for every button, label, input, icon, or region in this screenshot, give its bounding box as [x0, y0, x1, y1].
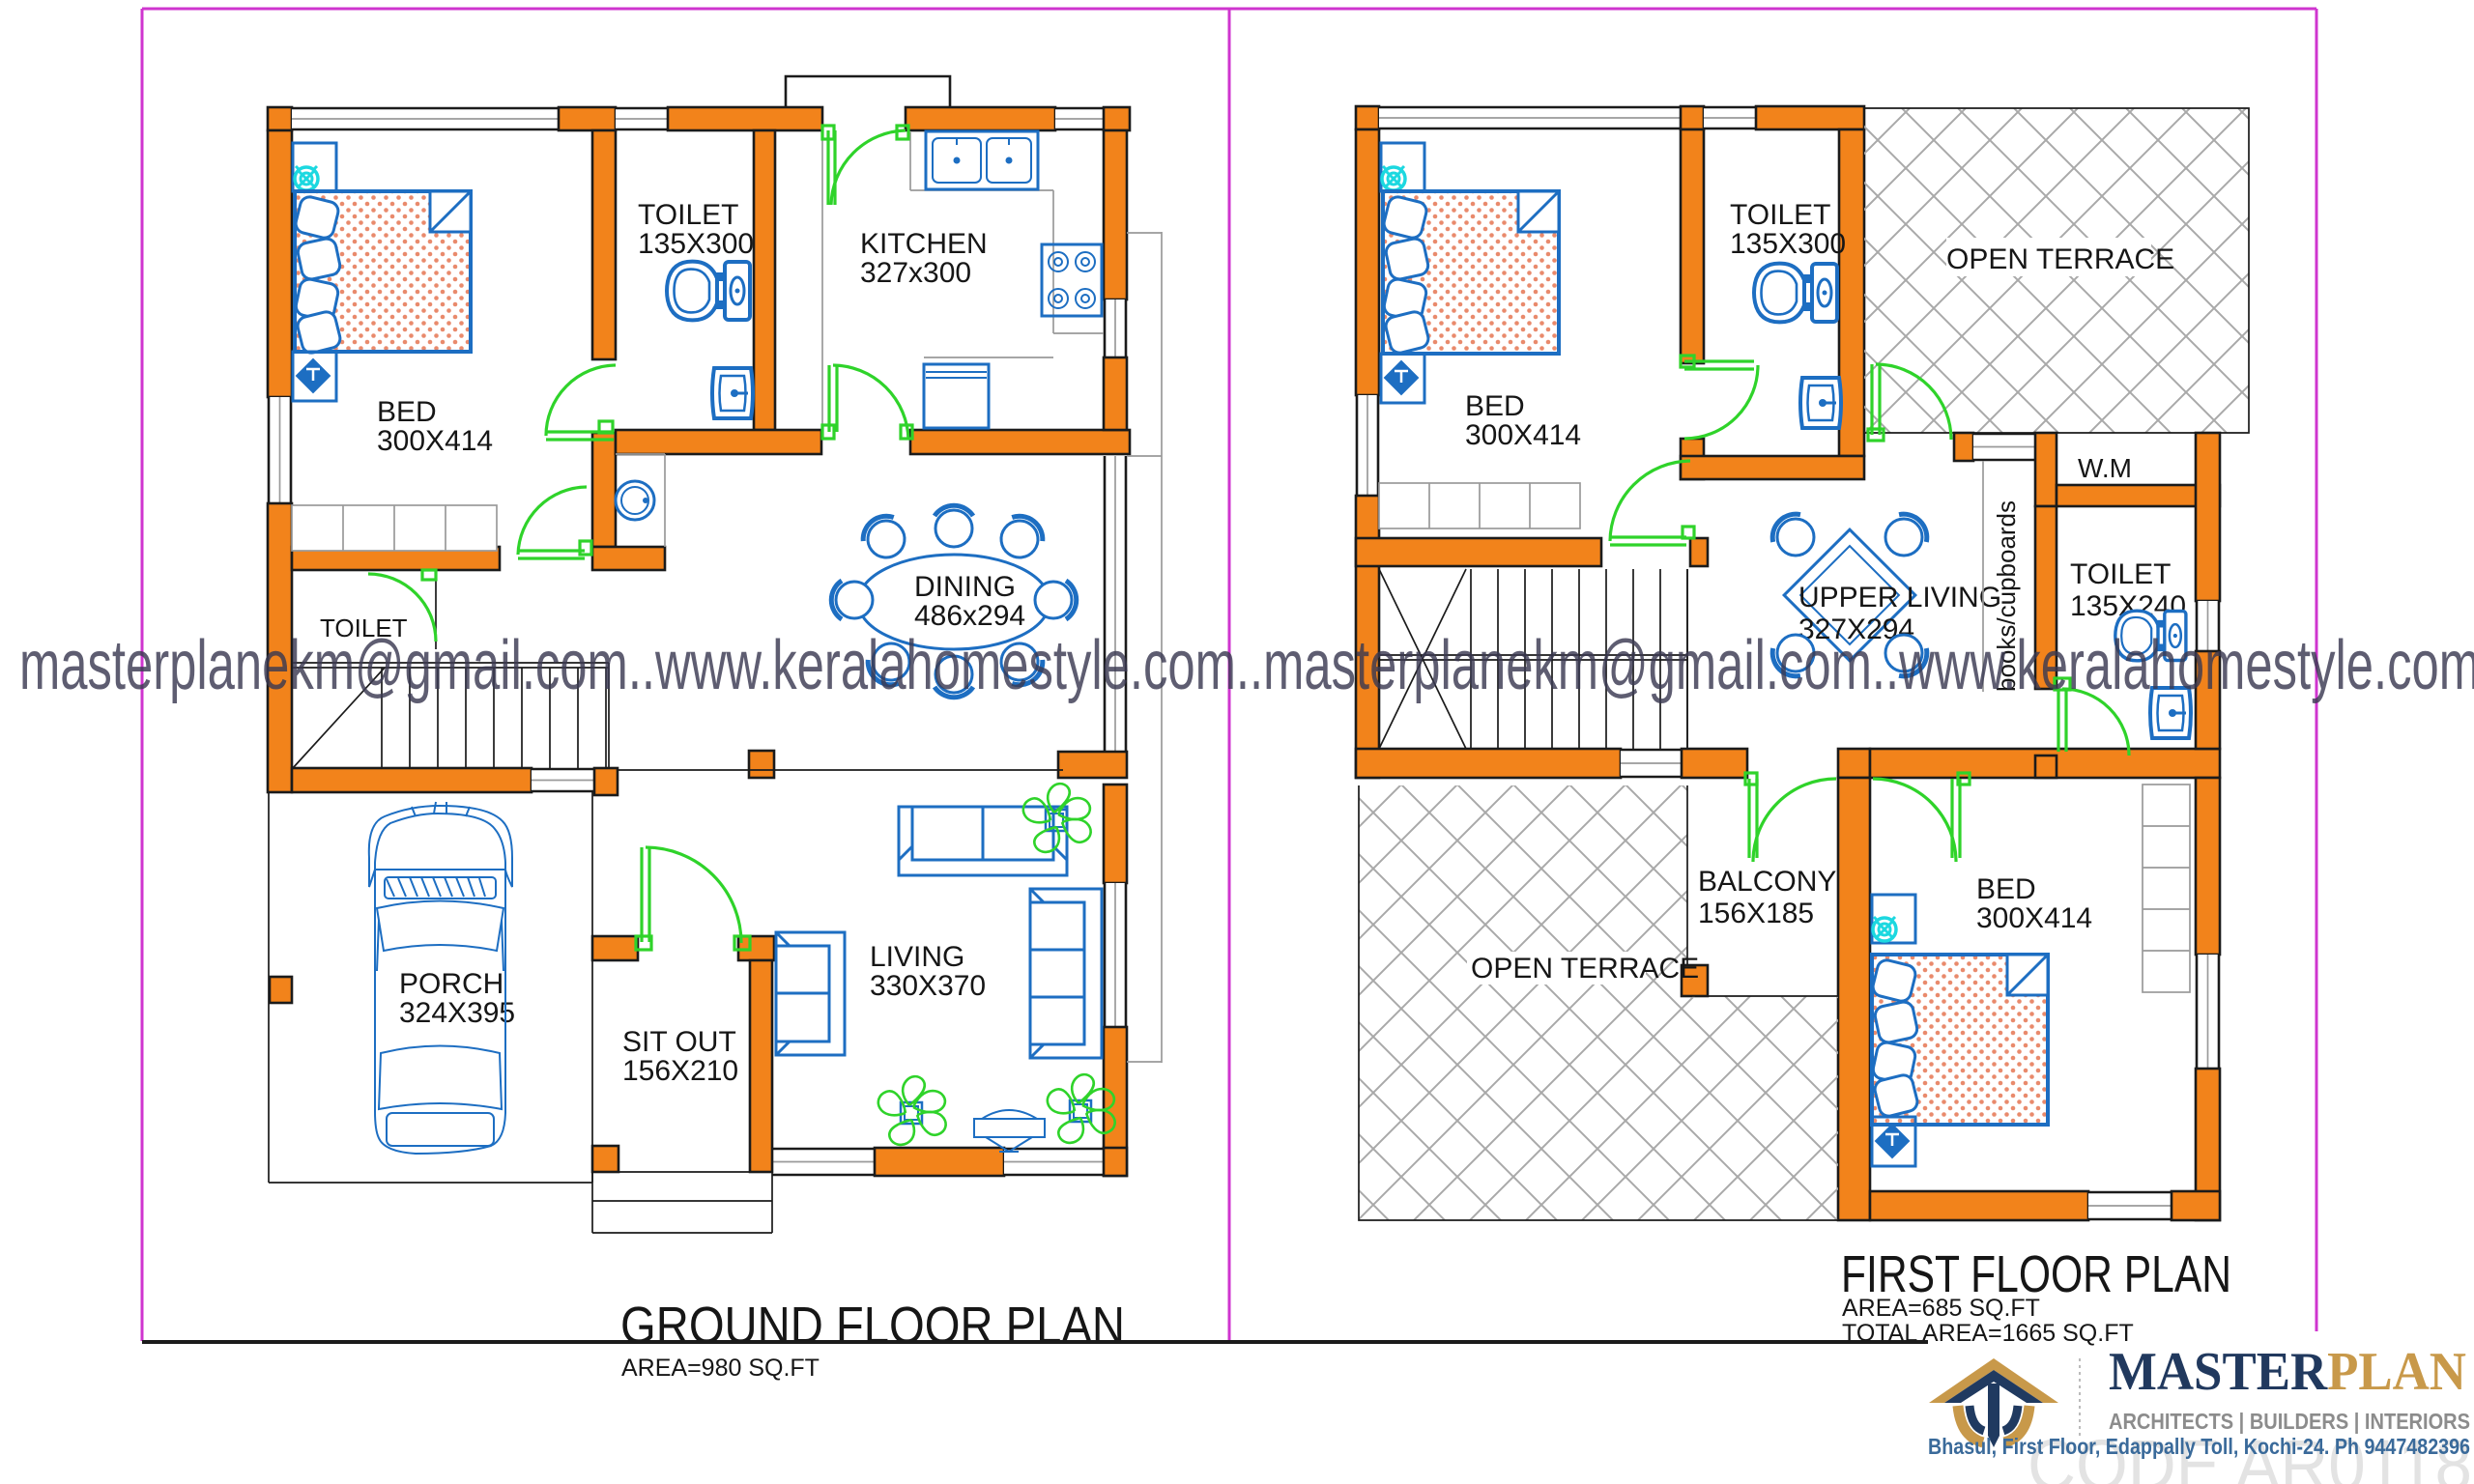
svg-text:Bhasul, First Floor, Edappally: Bhasul, First Floor, Edappally Toll, Koc…	[1928, 1434, 2470, 1459]
svg-text:TOILET: TOILET	[638, 199, 738, 231]
svg-text:330X370: 330X370	[870, 970, 986, 1002]
svg-text:SIT OUT: SIT OUT	[622, 1026, 736, 1058]
svg-text:156X185: 156X185	[1698, 898, 1814, 929]
svg-text:W.M: W.M	[2078, 453, 2132, 483]
svg-text:BALCONY: BALCONY	[1698, 866, 1836, 898]
svg-text:UPPER LIVING: UPPER LIVING	[1798, 582, 2001, 614]
svg-text:OPEN TERRACE: OPEN TERRACE	[1946, 243, 2174, 275]
svg-text:300X414: 300X414	[1465, 419, 1581, 451]
svg-text:156X210: 156X210	[622, 1055, 738, 1087]
svg-text:AREA=685 SQ.FT: AREA=685 SQ.FT	[1842, 1295, 2040, 1322]
svg-text:ARCHITECTS | BUILDERS | INTERI: ARCHITECTS | BUILDERS | INTERIORS	[2109, 1409, 2470, 1434]
svg-text:300X414: 300X414	[1976, 902, 2092, 934]
svg-text:BED: BED	[1976, 873, 2036, 905]
svg-text:135X300: 135X300	[1730, 228, 1846, 260]
svg-text:MASTERPLAN: MASTERPLAN	[2109, 1342, 2466, 1402]
svg-text:DINING: DINING	[914, 571, 1016, 603]
svg-text:KITCHEN: KITCHEN	[860, 228, 988, 260]
svg-text:TOILET: TOILET	[1730, 199, 1830, 231]
svg-text:OPEN TERRACE: OPEN TERRACE	[1471, 953, 1699, 985]
svg-text:327x300: 327x300	[860, 257, 971, 289]
svg-text:LIVING: LIVING	[870, 941, 964, 973]
svg-text:BED: BED	[377, 396, 437, 428]
svg-text:GROUND FLOOR PLAN: GROUND FLOOR PLAN	[620, 1297, 1125, 1355]
svg-text:PORCH: PORCH	[399, 968, 503, 1000]
svg-text:BED: BED	[1465, 390, 1525, 422]
svg-text:324X395: 324X395	[399, 997, 515, 1029]
svg-text:AREA=980 SQ.FT: AREA=980 SQ.FT	[621, 1355, 820, 1382]
svg-text:TOILET: TOILET	[2070, 558, 2171, 590]
svg-text:masterplanekm@gmail.com..www.k: masterplanekm@gmail.com..www.keralahomes…	[19, 627, 2474, 704]
svg-text:135X300: 135X300	[638, 228, 754, 260]
svg-text:300X414: 300X414	[377, 425, 493, 457]
